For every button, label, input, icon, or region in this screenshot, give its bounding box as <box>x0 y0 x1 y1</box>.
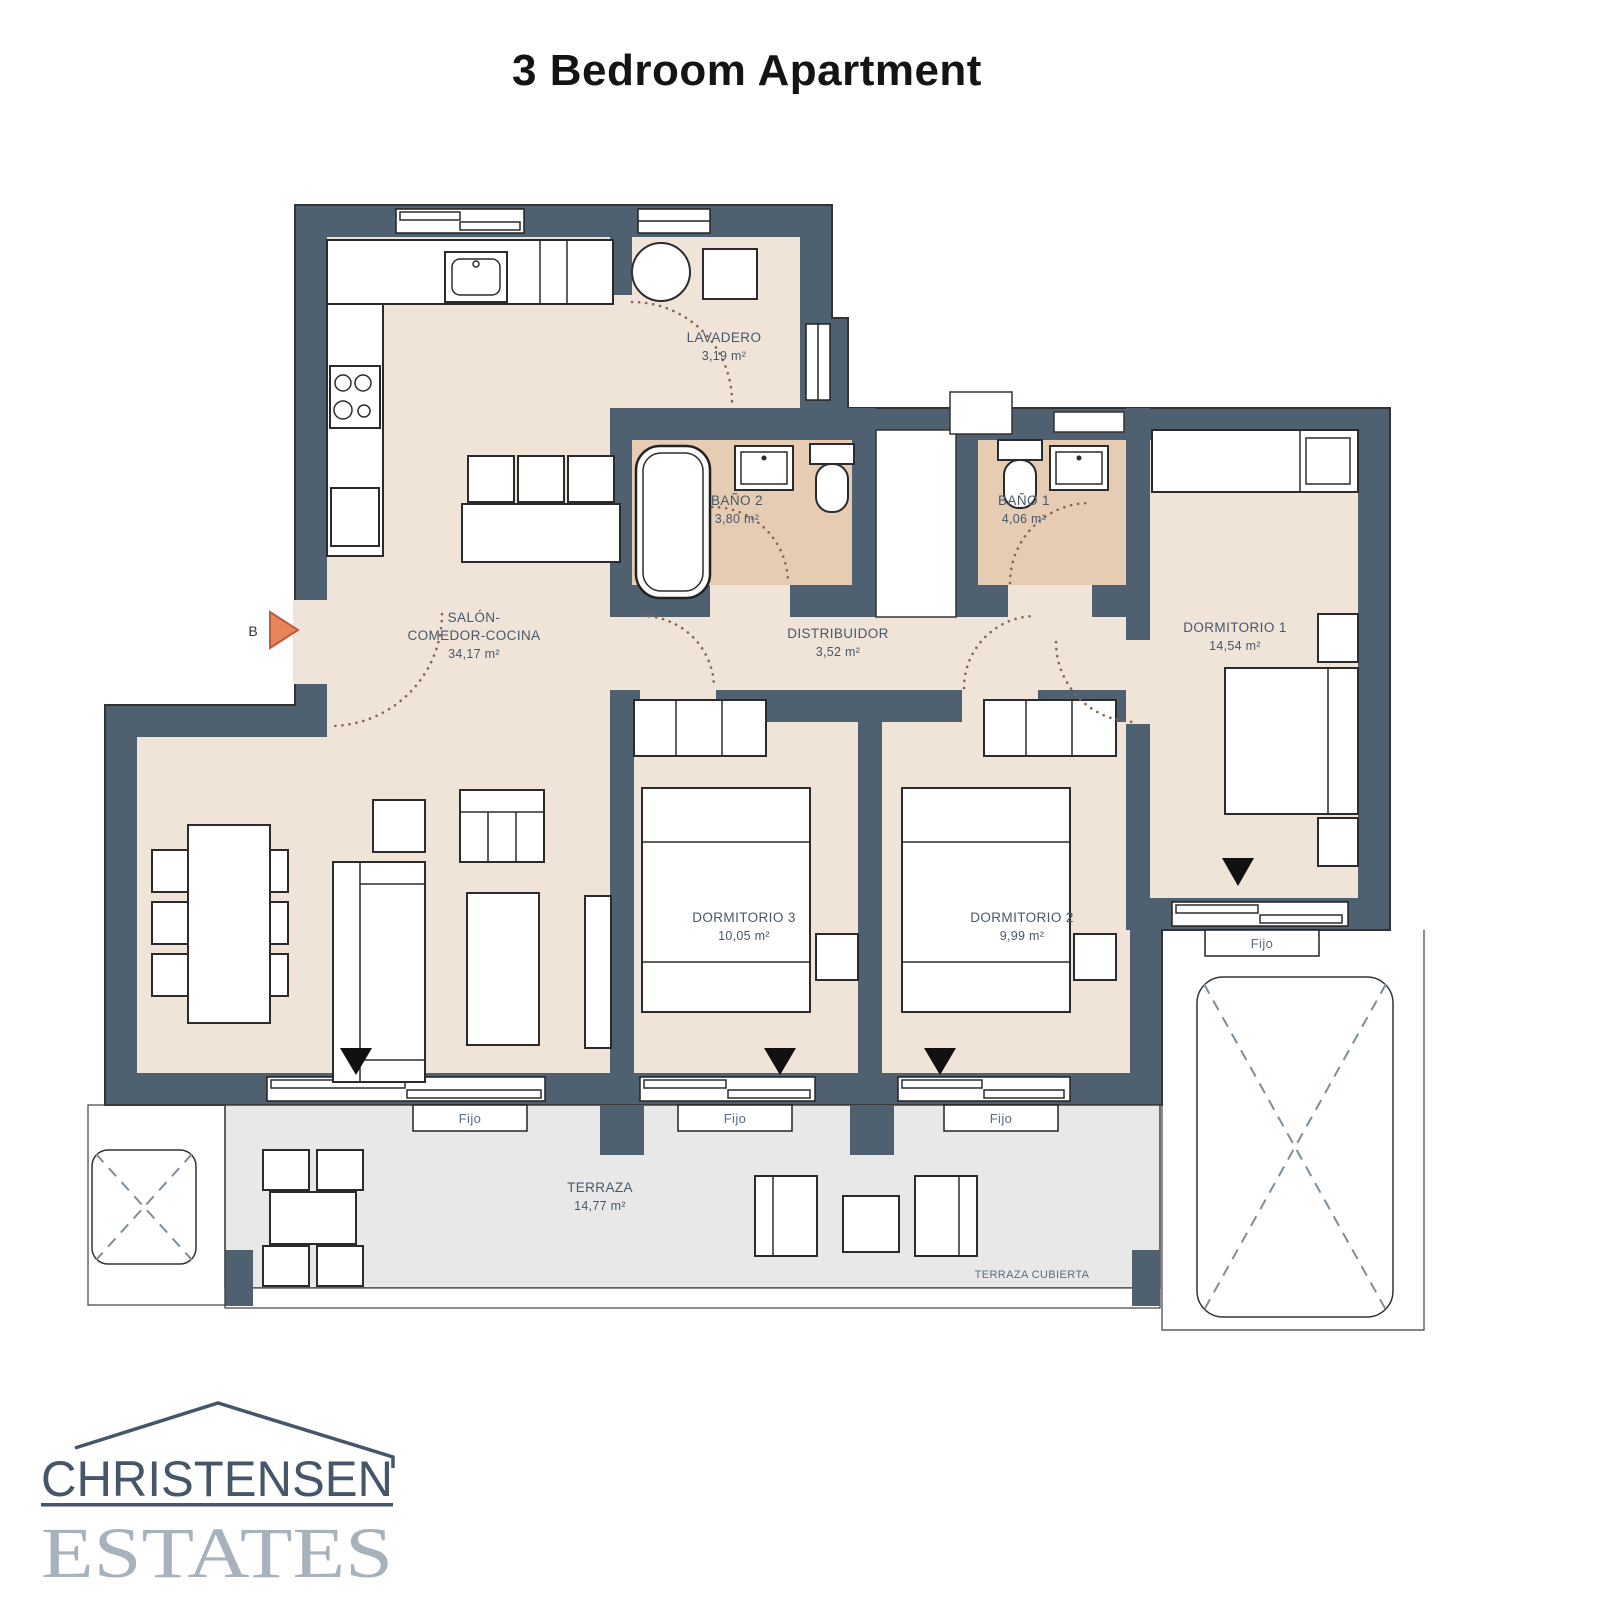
label-terraza: TERRAZA <box>567 1180 633 1195</box>
area-dormitorio1: 14,54 m² <box>1209 639 1261 653</box>
neighbour-right <box>1162 930 1424 1330</box>
area-terraza: 14,77 m² <box>574 1199 626 1213</box>
sideboard-icon <box>585 896 611 1048</box>
window-bath1-top <box>1054 412 1124 432</box>
floor-plan: B Fijo Fijo Fijo Fijo LAVADERO 3,19 m² B… <box>0 0 1600 1600</box>
window-dorm1-bottom <box>1172 902 1348 926</box>
nightstand-icon <box>1318 818 1358 866</box>
window-fixed-label: Fijo <box>459 1111 482 1126</box>
window-fixed-label: Fijo <box>1251 936 1274 951</box>
area-bano2: 3,80 m² <box>715 512 759 526</box>
area-dormitorio3: 10,05 m² <box>718 929 770 943</box>
washer-icon <box>632 243 690 301</box>
sink-icon <box>445 252 507 302</box>
terrace-floor <box>225 1105 1160 1288</box>
brand-logo: CHRISTENSEN ESTATES <box>41 1403 393 1593</box>
label-dormitorio2: DORMITORIO 2 <box>970 910 1074 925</box>
neighbour-left <box>88 1105 225 1305</box>
wardrobe-icon <box>1152 430 1358 492</box>
label-bano1: BAÑO 1 <box>998 493 1050 508</box>
dryer-icon <box>703 249 757 299</box>
area-dormitorio2: 9,99 m² <box>1000 929 1044 943</box>
label-bano2: BAÑO 2 <box>711 493 763 508</box>
nightstand-icon <box>1074 934 1116 980</box>
label-dormitorio1: DORMITORIO 1 <box>1183 620 1287 635</box>
bed-icon <box>1225 668 1358 814</box>
area-bano1: 4,06 m² <box>1002 512 1046 526</box>
label-salon-line1: SALÓN- <box>448 610 501 625</box>
label-lavadero: LAVADERO <box>687 330 762 345</box>
kitchen-island-icon <box>462 456 620 562</box>
window-lavadero-top <box>638 209 710 233</box>
label-salon-line2: COMEDOR-COCINA <box>407 628 540 643</box>
area-lavadero: 3,19 m² <box>702 349 746 363</box>
kitchen-appliance <box>331 488 379 546</box>
floor-plan-page: 3 Bedroom Apartment <box>0 0 1600 1600</box>
window-fixed-label: Fijo <box>724 1111 747 1126</box>
toilet-icon <box>810 444 854 512</box>
shaft <box>876 430 956 617</box>
void-box-right <box>1197 977 1393 1317</box>
wall-stub-1 <box>600 1105 644 1155</box>
nightstand-icon <box>816 934 858 980</box>
tv-unit-icon <box>460 790 544 862</box>
wall-stub-2 <box>850 1105 894 1155</box>
wardrobe-icon <box>634 700 766 756</box>
stove-icon <box>330 366 380 428</box>
window-dorm2-bottom <box>898 1077 1070 1101</box>
logo-divider <box>41 1503 393 1507</box>
terrace-post-right <box>1132 1250 1160 1306</box>
bathtub-icon <box>636 446 710 598</box>
entrance-letter: B <box>248 623 257 639</box>
window-dorm3-bottom <box>640 1077 815 1101</box>
sink-icon <box>735 446 793 490</box>
entrance-door-gap <box>293 600 329 684</box>
dining-table-icon <box>152 825 288 1023</box>
logo-line2: ESTATES <box>41 1513 393 1593</box>
area-salon: 34,17 m² <box>448 647 500 661</box>
area-distribuidor: 3,52 m² <box>816 645 860 659</box>
coffee-table-icon <box>467 893 539 1045</box>
terrace-edge-band <box>225 1288 1160 1308</box>
bed-icon <box>902 788 1070 1012</box>
vent-box <box>950 392 1012 434</box>
sink-icon <box>1050 446 1108 490</box>
armchair-icon <box>373 800 425 852</box>
window-fixed-label: Fijo <box>990 1111 1013 1126</box>
label-dormitorio3: DORMITORIO 3 <box>692 910 796 925</box>
wardrobe-icon <box>984 700 1116 756</box>
bed-icon <box>642 788 810 1012</box>
window-lavadero-right <box>806 324 830 400</box>
window-kitchen-top <box>396 209 524 233</box>
terrace-post-left <box>225 1250 253 1306</box>
logo-line1: CHRISTENSEN <box>41 1451 393 1507</box>
nightstand-icon <box>1318 614 1358 662</box>
void-box-left <box>92 1150 196 1264</box>
label-terraza-cubierta: TERRAZA CUBIERTA <box>975 1269 1090 1281</box>
label-distribuidor: DISTRIBUIDOR <box>787 626 889 641</box>
